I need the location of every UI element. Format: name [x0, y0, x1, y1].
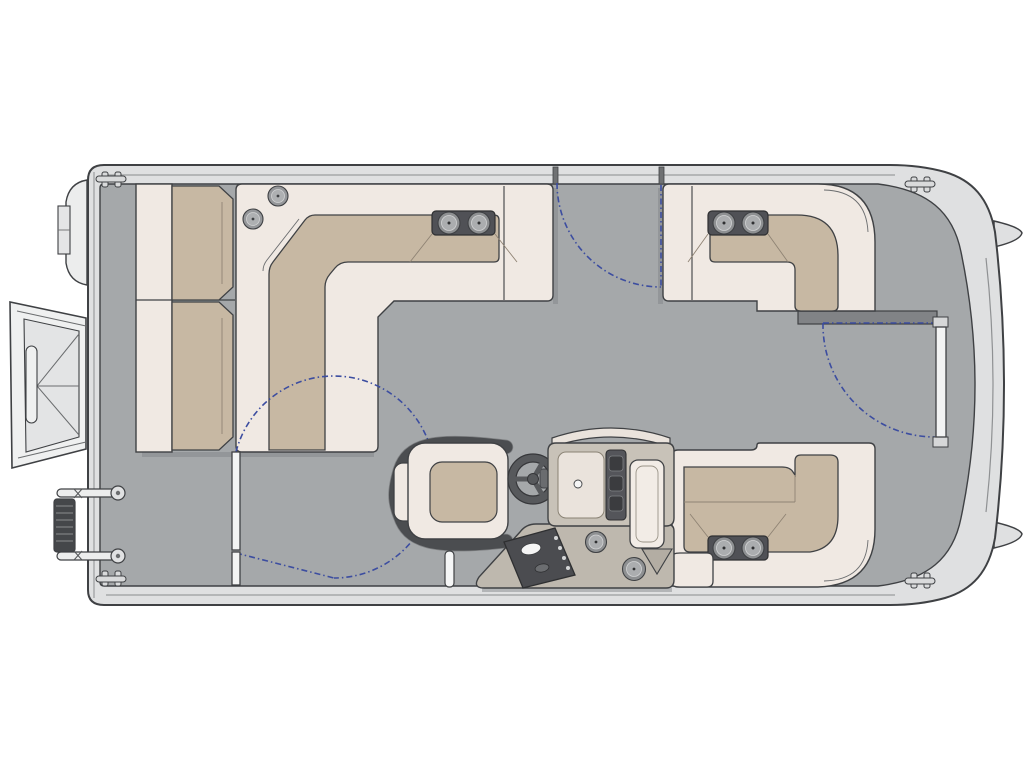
- chair-cushion: [430, 462, 497, 522]
- console-cup-holder-2: [623, 558, 646, 581]
- bow-gate-post-top: [933, 317, 948, 327]
- starboard-bow-lounge: [665, 443, 875, 587]
- bow-gate-panel: [936, 327, 946, 437]
- floorplan-drawing: [0, 0, 1024, 768]
- nose-cone-fin-top: [994, 221, 1022, 247]
- bow-gate-post-bottom: [933, 437, 948, 447]
- port-gate-post-right: [659, 167, 664, 184]
- outboard-motor: [10, 302, 86, 468]
- port-gate-post-left: [553, 167, 558, 184]
- captain-chair: [394, 443, 508, 544]
- instrument-cluster: [606, 450, 626, 520]
- corner-cup-holder-1: [243, 209, 263, 229]
- console-cup-holder-1: [586, 532, 607, 553]
- starboard-gate-panel: [232, 452, 240, 550]
- ignition-switch: [574, 480, 582, 488]
- stern-bench-cushion-top: [172, 186, 233, 300]
- port-bow-lounge: [663, 184, 875, 311]
- console-side-panel: [630, 460, 664, 548]
- tow-pylon: [445, 551, 454, 587]
- corner-cup-holder-2: [268, 186, 288, 206]
- stern-mooring-pad: [58, 180, 87, 285]
- stern-bench: [136, 184, 235, 452]
- starboard-gate-post: [232, 552, 240, 585]
- pontoon-floorplan: [0, 0, 1024, 768]
- bow-corridor-kick-bar: [798, 311, 937, 324]
- stern-bench-cushion-bottom: [172, 302, 233, 450]
- nose-cone-fin-bottom: [994, 522, 1022, 548]
